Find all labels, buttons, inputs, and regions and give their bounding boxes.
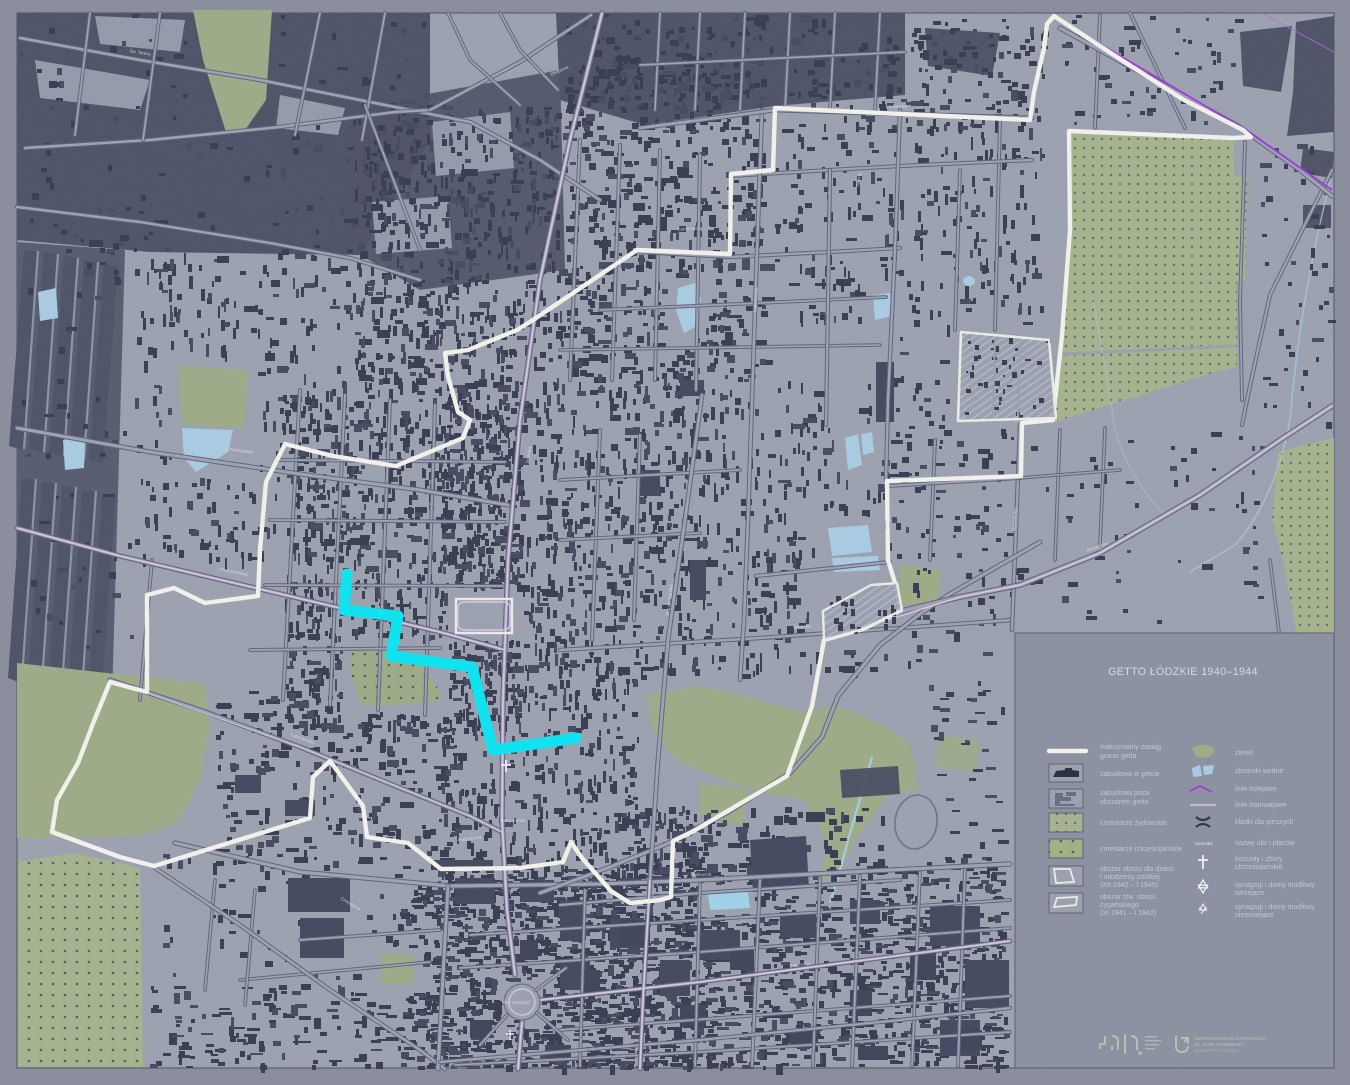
svg-text:cygańskiego: cygańskiego [1100, 902, 1139, 909]
svg-text:obszar obozu dla dzieci: obszar obozu dla dzieci [1100, 866, 1174, 873]
svg-text:maksymalny zasiąg: maksymalny zasiąg [1100, 744, 1161, 751]
svg-text:IM. FILIPA FRIEDMANA: IM. FILIPA FRIEDMANA [1194, 1042, 1244, 1047]
svg-text:istniejące: istniejące [1235, 890, 1264, 897]
svg-text:linie tramwajowe: linie tramwajowe [1235, 802, 1287, 809]
svg-text:(XII 1942 – I 1945): (XII 1942 – I 1945) [1100, 882, 1158, 889]
svg-text:synagogi i domy modlitwy: synagogi i domy modlitwy [1235, 882, 1315, 889]
svg-text:nieistniejące: nieistniejące [1235, 912, 1274, 919]
svg-text:(XI 1941 – I 1942): (XI 1941 – I 1942) [1100, 910, 1156, 917]
svg-text:UNIWERSYTET ŁÓDZKI: UNIWERSYTET ŁÓDZKI [1194, 1048, 1239, 1053]
svg-text:linie kolejowe: linie kolejowe [1235, 786, 1277, 793]
svg-text:zieleń: zieleń [1235, 750, 1253, 757]
svg-text:zabudowa w getcie: zabudowa w getcie [1100, 771, 1160, 778]
svg-text:chrześcijańskie: chrześcijańskie [1235, 864, 1283, 871]
svg-text:zabudowa poza: zabudowa poza [1100, 790, 1149, 797]
svg-text:CENTRUM BADAŃ ŻYDOWSKICH: CENTRUM BADAŃ ŻYDOWSKICH [1194, 1035, 1266, 1041]
svg-text:nazwy ulic i placów: nazwy ulic i placów [1235, 840, 1295, 847]
svg-text:kościoły i zbory: kościoły i zbory [1235, 856, 1283, 863]
svg-text:synagogi i domy modlitwy: synagogi i domy modlitwy [1235, 904, 1315, 911]
svg-text:cmentarze chrześcijańskie: cmentarze chrześcijańskie [1100, 846, 1182, 853]
svg-text:Dworska: Dworska [1195, 841, 1213, 846]
svg-text:kładki dla pieszych: kładki dla pieszych [1235, 819, 1293, 826]
svg-text:cmentarze żydowskie: cmentarze żydowskie [1100, 820, 1167, 827]
svg-text:zbiorniki wodne: zbiorniki wodne [1235, 768, 1283, 775]
svg-text:i młodzieży polskiej: i młodzieży polskiej [1100, 874, 1160, 881]
svg-text:obszar tzw. obozu: obszar tzw. obozu [1100, 894, 1156, 901]
svg-text:GETTO ŁÓDZKIE 1940–1944: GETTO ŁÓDZKIE 1940–1944 [1108, 665, 1258, 678]
svg-text:granic getta: granic getta [1100, 753, 1137, 760]
svg-text:obszarem getta: obszarem getta [1100, 799, 1148, 806]
